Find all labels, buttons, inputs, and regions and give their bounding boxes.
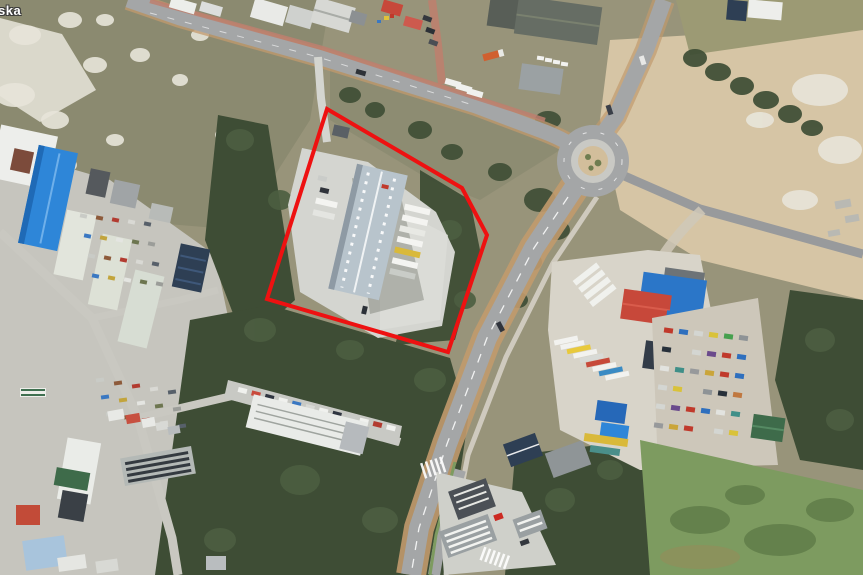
roof-bottom-edge-3 <box>206 556 226 570</box>
blue-shed-1 <box>595 400 627 424</box>
green-roof-scrapyard <box>750 414 785 442</box>
roundabout <box>557 125 629 197</box>
aerial-imagery <box>0 0 863 575</box>
street-name-label: ska <box>0 3 21 18</box>
red-roof-cottage <box>16 505 40 525</box>
dark-solar-shed <box>58 490 88 522</box>
green-striped-truck <box>20 388 46 397</box>
satellite-map-canvas[interactable]: ska <box>0 0 863 575</box>
scrapyard-ground <box>652 298 778 468</box>
roundabout-island <box>578 146 608 176</box>
lawn-dirt-patch <box>660 545 740 569</box>
